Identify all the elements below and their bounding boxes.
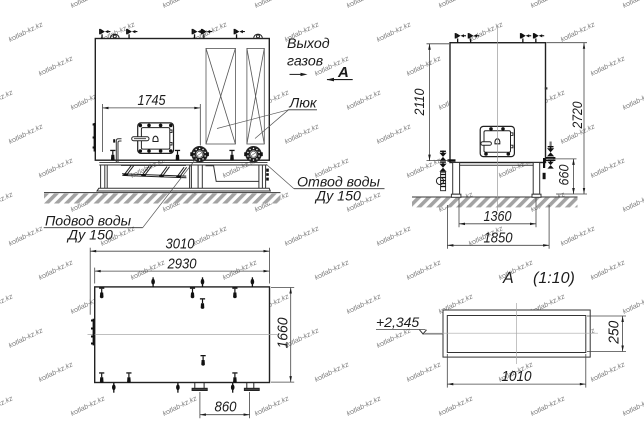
svg-text:250: 250: [606, 320, 623, 345]
svg-text:1745: 1745: [138, 92, 167, 109]
svg-text:2720: 2720: [570, 101, 585, 129]
svg-text:Выход: Выход: [287, 36, 330, 52]
svg-text:1850: 1850: [484, 229, 514, 246]
svg-text:1360: 1360: [484, 208, 513, 225]
svg-text:А: А: [502, 270, 514, 287]
svg-text:3010: 3010: [166, 236, 196, 253]
svg-text:660: 660: [557, 164, 572, 185]
svg-text:газов: газов: [287, 54, 323, 70]
svg-text:2110: 2110: [412, 88, 427, 116]
svg-text:Ду 150: Ду 150: [66, 228, 113, 244]
svg-text:А: А: [337, 64, 349, 81]
svg-text:1660: 1660: [275, 317, 292, 349]
svg-text:(1:10): (1:10): [533, 270, 575, 287]
svg-text:2930: 2930: [167, 256, 197, 273]
svg-text:Люк: Люк: [289, 96, 318, 112]
svg-text:1010: 1010: [502, 368, 533, 385]
svg-text:860: 860: [215, 398, 238, 415]
svg-text:Ду 150: Ду 150: [314, 189, 361, 205]
svg-text:+2,345: +2,345: [376, 314, 419, 330]
